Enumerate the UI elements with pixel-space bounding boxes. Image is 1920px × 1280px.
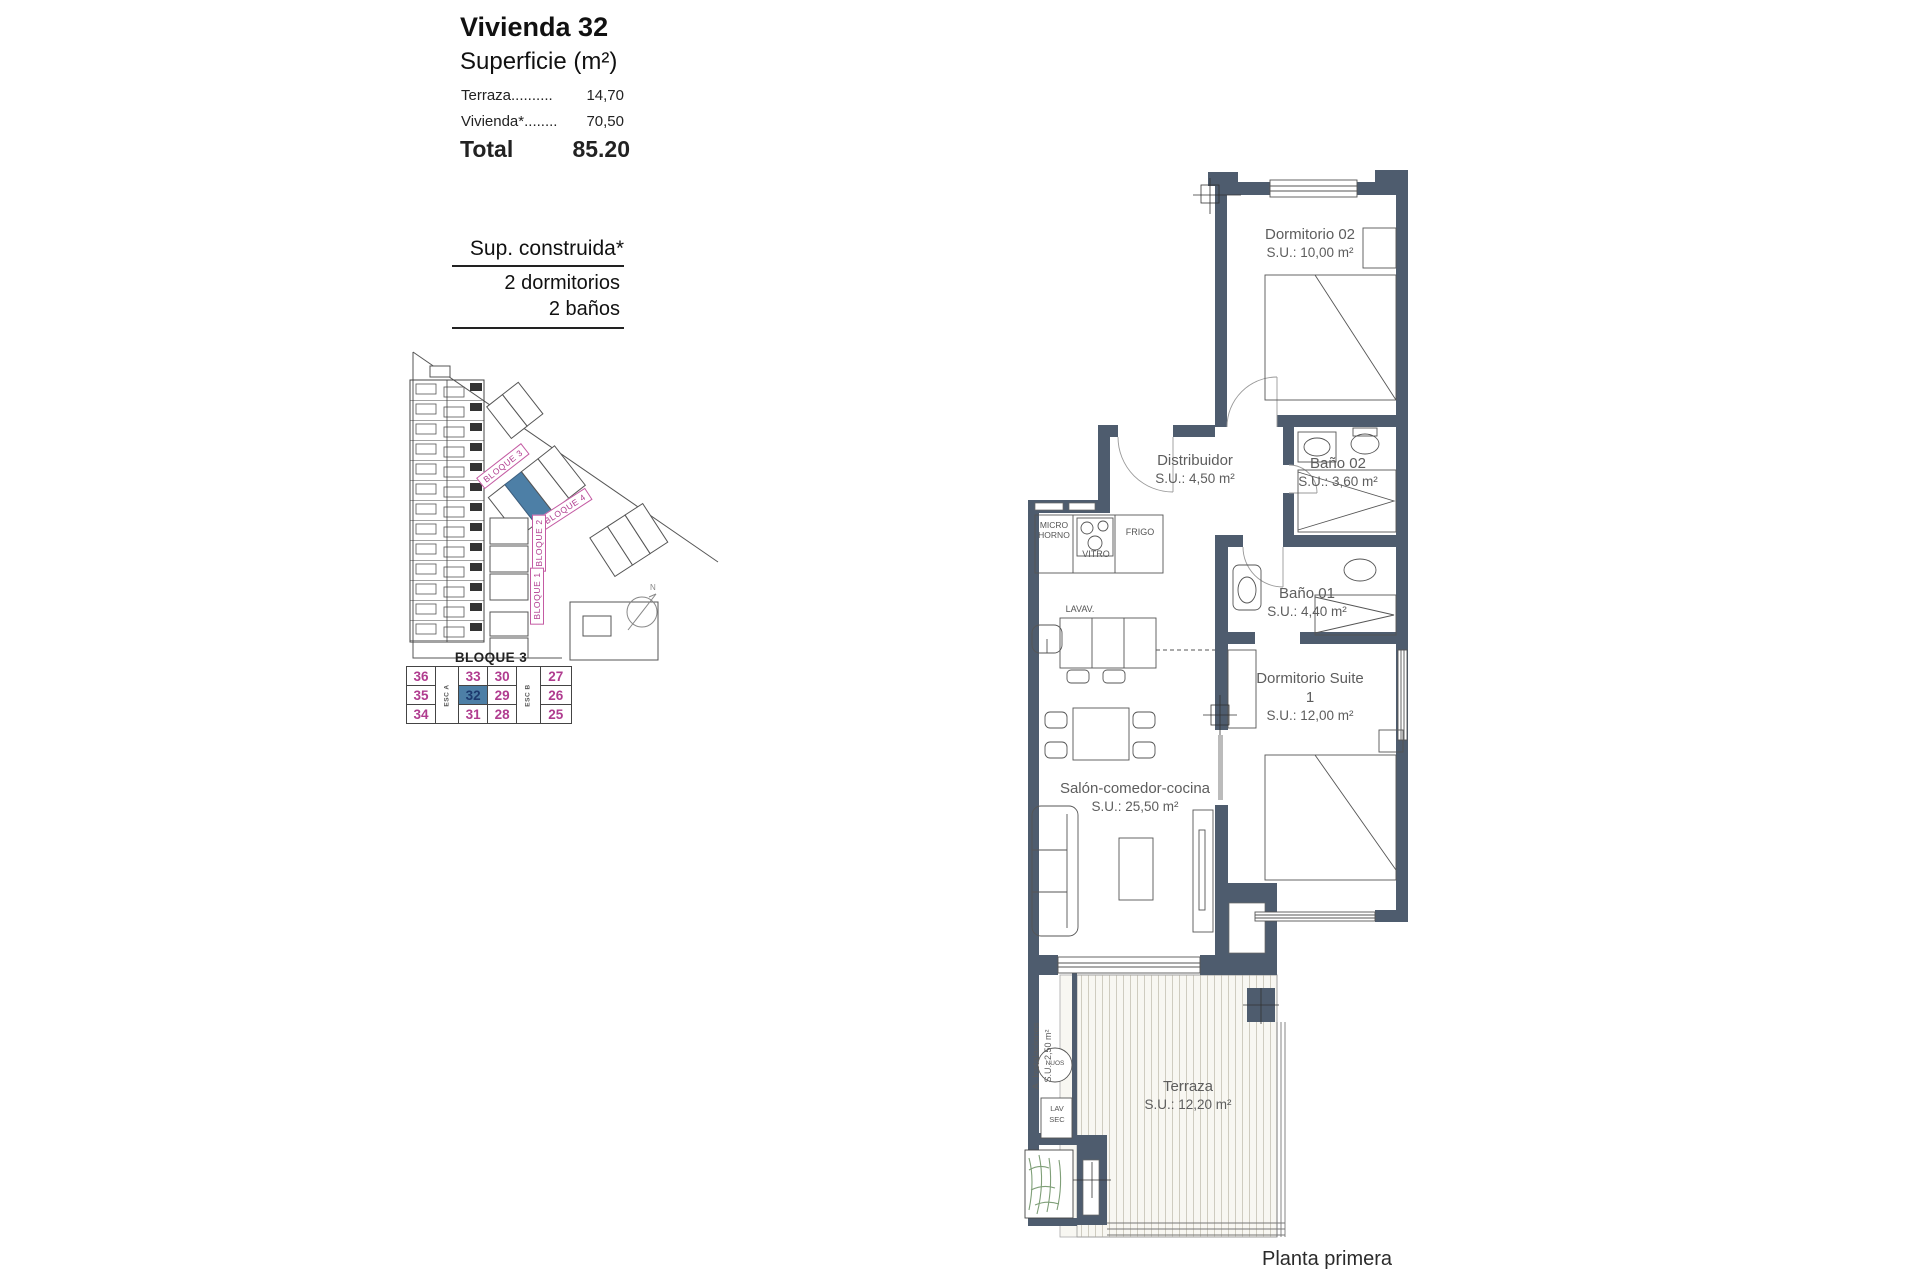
table-row: 36 ESC A 33 30 ESC B 27 <box>407 667 572 686</box>
lavav-label: LAVAV. <box>1056 604 1104 614</box>
unit-table-title: BLOQUE 3 <box>406 650 576 665</box>
room-label-distribuidor: Distribuidor S.U.: 4,50 m² <box>1130 452 1260 488</box>
plan-sheet: Vivienda 32 Superficie (m²) Terraza.....… <box>0 0 1920 1280</box>
surface-row-value: 14,70 <box>586 87 624 104</box>
bloque1-map-label: BLOQUE 1 <box>530 567 544 624</box>
surface-row-label: Terraza.......... <box>461 87 553 104</box>
sec-label: SEC <box>1041 1114 1073 1125</box>
total-value: 85.20 <box>572 136 630 163</box>
unit-cell: 26 <box>540 686 572 705</box>
lav-label: LAV <box>1041 1103 1073 1114</box>
surface-subtitle: Superficie (m²) <box>460 48 617 76</box>
unit-table: BLOQUE 3 36 ESC A 33 30 ESC B 27 35 32 2… <box>406 650 576 724</box>
unit-cell: 30 <box>488 667 517 686</box>
unit-cell: 28 <box>488 705 517 724</box>
built-surface-summary: Sup. construida* 2 dormitorios 2 baños <box>452 237 624 329</box>
table-row: 34 31 28 25 <box>407 705 572 724</box>
windows <box>1058 180 1407 973</box>
unit-cell: 35 <box>407 686 436 705</box>
bloque5-units <box>570 602 658 660</box>
surface-row-value: 70,50 <box>586 113 624 130</box>
room-label-terraza: Terraza S.U.: 12,20 m² <box>1128 1078 1248 1114</box>
micro-horno-label: MICRO HORNO <box>1035 521 1073 541</box>
room-label-bano02: Baño 02 S.U.: 3,60 m² <box>1283 455 1393 491</box>
unit-cell: 36 <box>407 667 436 686</box>
unit-cell: 31 <box>459 705 488 724</box>
bloque3-upper-units <box>487 382 543 438</box>
floor-name-label: Planta primera <box>1262 1248 1392 1271</box>
vitro-label: VITRO <box>1074 549 1118 559</box>
room-label-suite: Dormitorio Suite 1 S.U.: 12,00 m² <box>1255 670 1365 724</box>
unit-cell: 33 <box>459 667 488 686</box>
planter-box <box>1025 1150 1073 1218</box>
surface-row-label: Vivienda*........ <box>461 113 557 130</box>
summary-line-banos: 2 baños <box>452 297 624 329</box>
site-small-building <box>430 366 450 377</box>
north-letter: N <box>650 583 656 592</box>
room-label-dormitorio02: Dormitorio 02 S.U.: 10,00 m² <box>1235 226 1385 262</box>
bloque4-units <box>590 504 668 577</box>
table-row: 35 32 29 26 <box>407 686 572 705</box>
frigo-label: FRIGO <box>1118 527 1162 537</box>
unit-cell-selected: 32 <box>459 686 488 705</box>
total-label: Total <box>460 136 513 163</box>
bloque2-map-label: BLOQUE 2 <box>532 514 546 571</box>
summary-line-sup-construida: Sup. construida* <box>452 237 624 267</box>
north-compass-icon <box>627 594 657 630</box>
surface-total-row: Total 85.20 <box>460 136 630 163</box>
summary-line-dormitorios: 2 dormitorios <box>452 270 624 297</box>
surface-row-terraza: Terraza.......... 14,70 <box>461 87 624 104</box>
unit-cell: 34 <box>407 705 436 724</box>
surface-row-vivienda: Vivienda*........ 70,50 <box>461 113 624 130</box>
room-label-bano01: Baño 01 S.U.: 4,40 m² <box>1252 585 1362 621</box>
nuos-label: NUOS <box>1038 1060 1072 1067</box>
room-label-salon: Salón-comedor-cocina S.U.: 25,50 m² <box>1050 780 1220 816</box>
unit-cell: 25 <box>540 705 572 724</box>
stair-b-cell: ESC B <box>517 667 540 724</box>
unit-cell: 29 <box>488 686 517 705</box>
stair-a-cell: ESC A <box>436 667 459 724</box>
unit-cell: 27 <box>540 667 572 686</box>
page-title: Vivienda 32 <box>460 12 608 43</box>
townhouse-strip <box>410 380 484 642</box>
bloque2-units <box>490 518 528 600</box>
lav-sec-label: LAV SEC <box>1041 1103 1073 1126</box>
